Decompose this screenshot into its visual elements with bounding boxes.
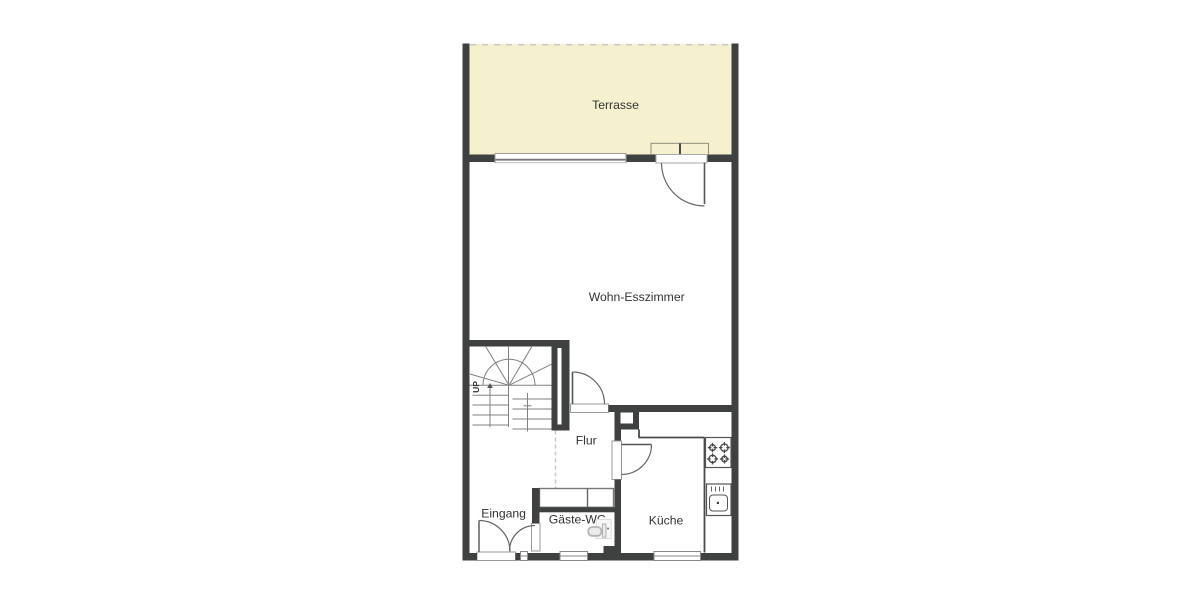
svg-text:Flur: Flur [576,434,597,448]
svg-text:UP: UP [471,381,481,393]
svg-text:Küche: Küche [649,514,684,528]
svg-text:Eingang: Eingang [481,507,526,521]
svg-text:Wohn-Esszimmer: Wohn-Esszimmer [589,290,685,304]
svg-text:Terrasse: Terrasse [592,98,639,112]
